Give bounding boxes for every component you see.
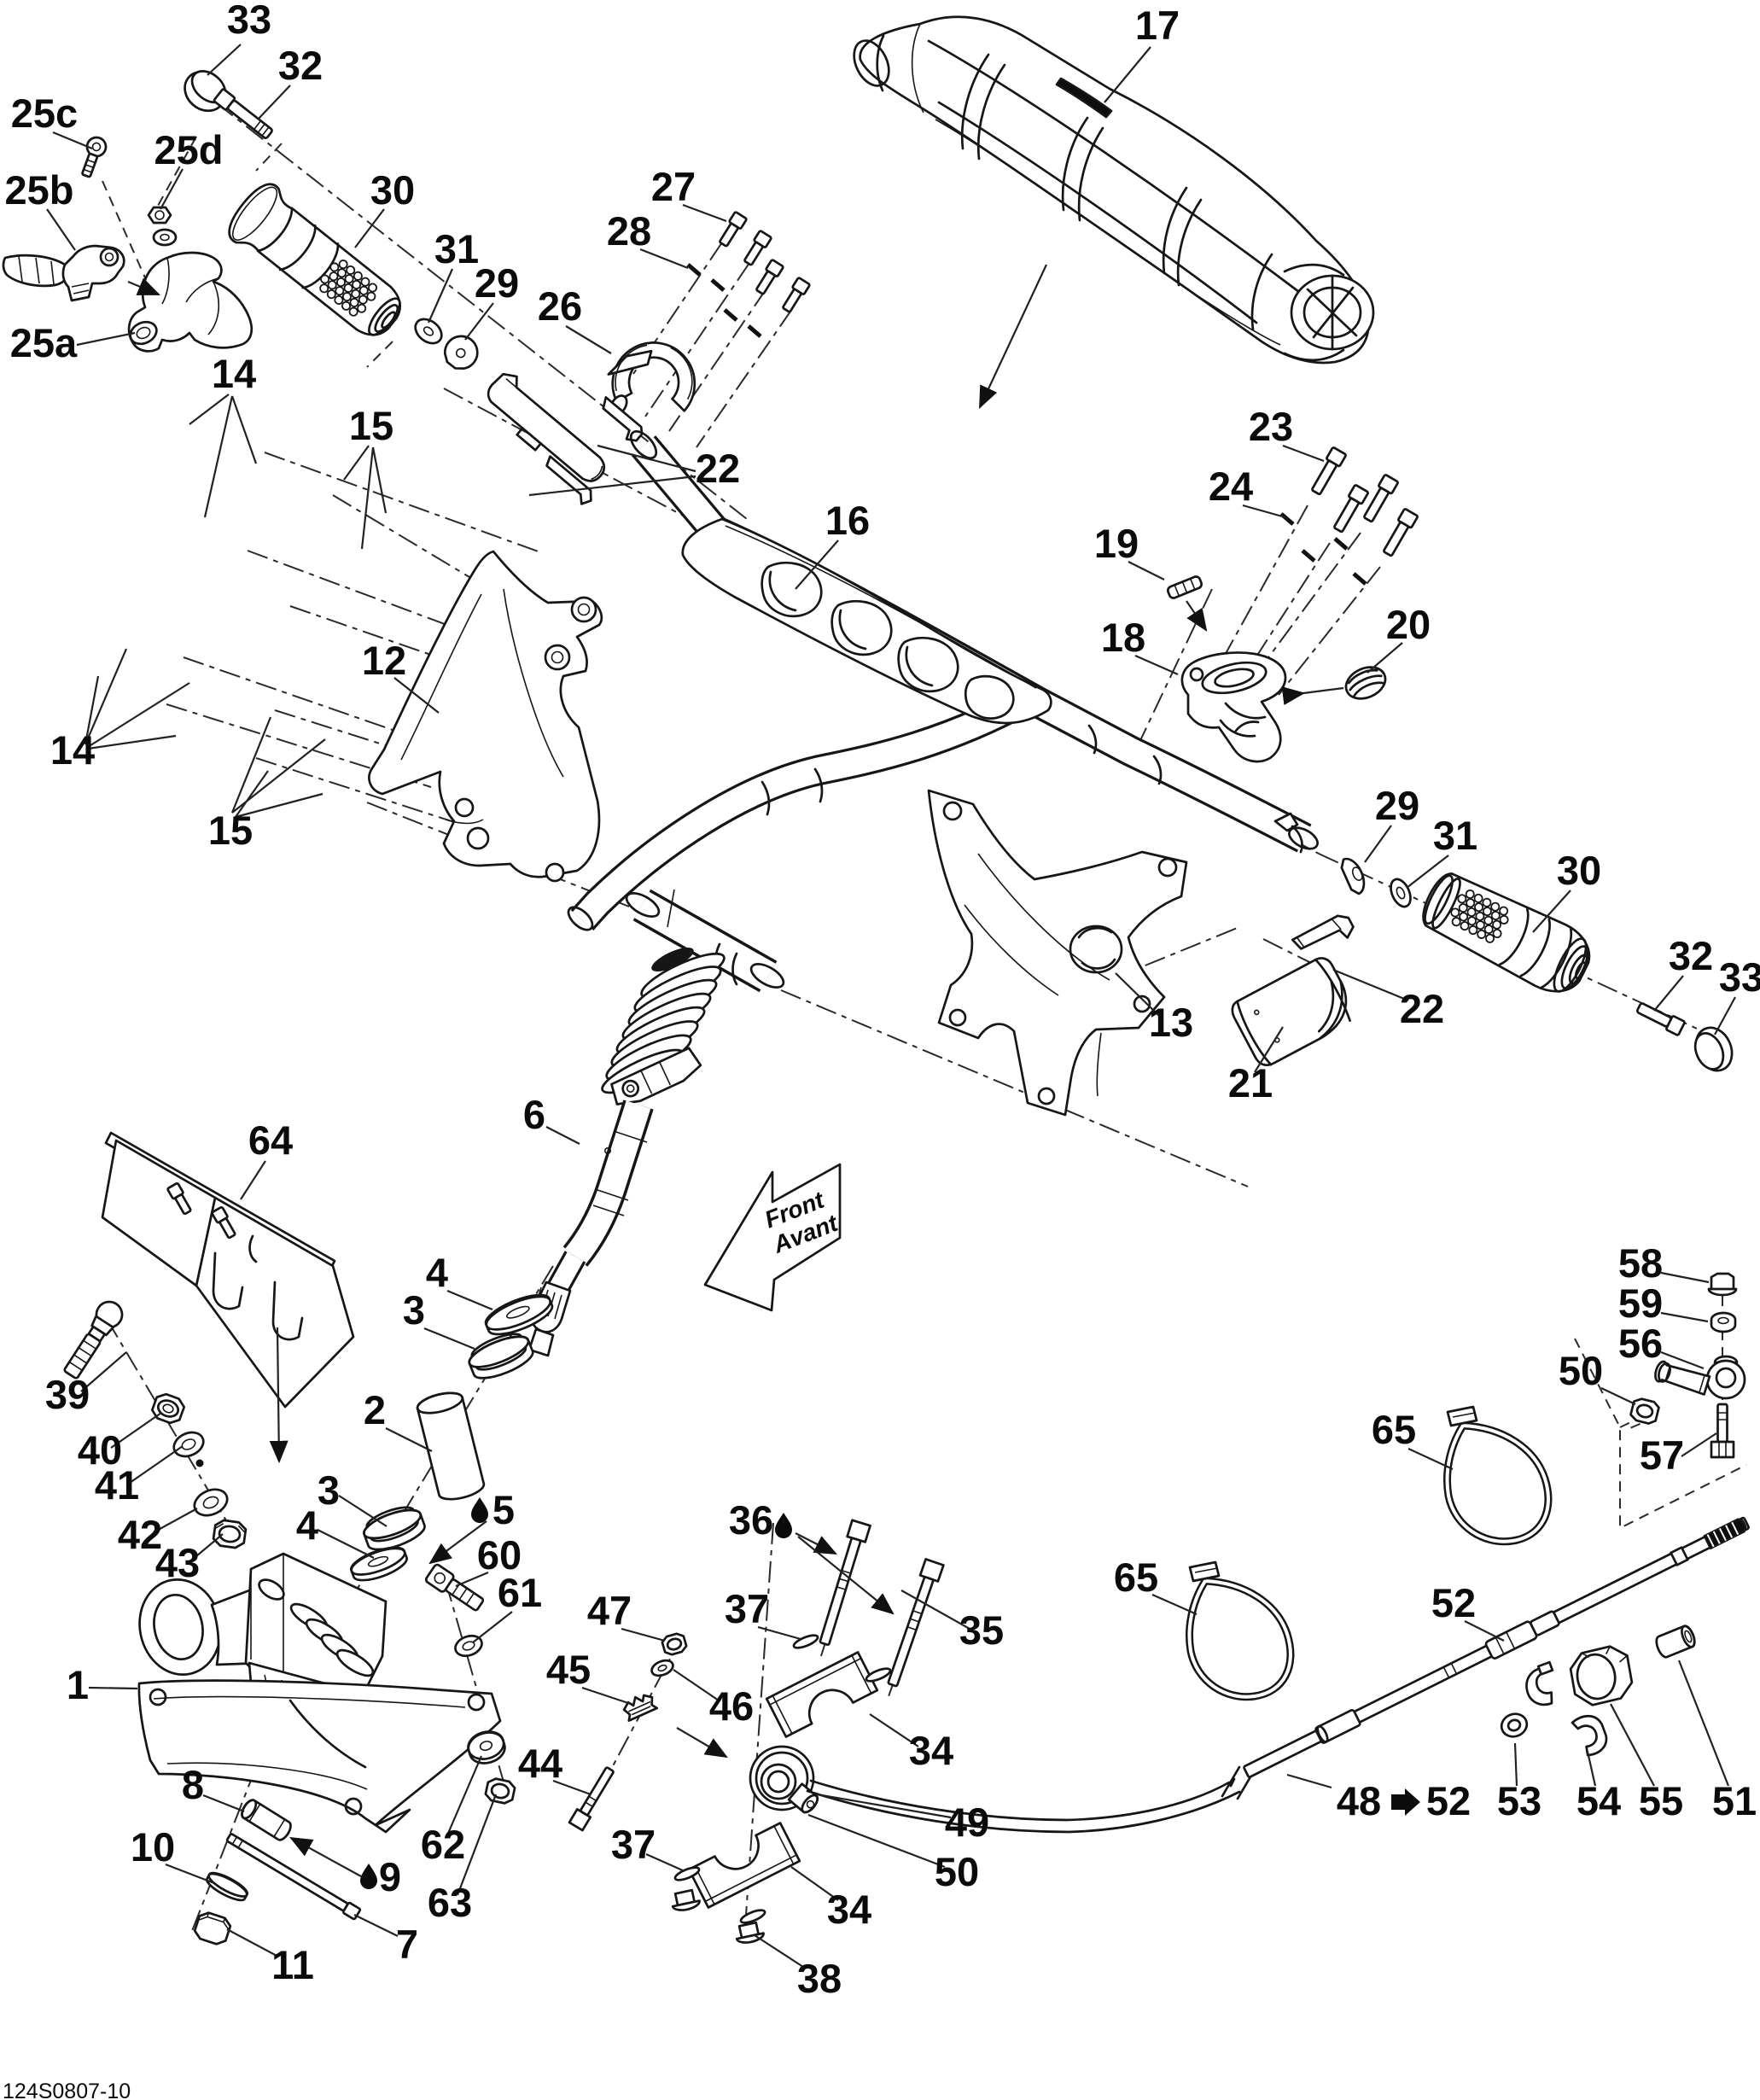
svg-text:26: 26 (538, 283, 582, 329)
svg-text:25a: 25a (10, 320, 78, 365)
svg-text:6: 6 (523, 1092, 545, 1137)
svg-text:4: 4 (296, 1502, 318, 1548)
svg-text:9: 9 (379, 1854, 401, 1899)
svg-text:4: 4 (426, 1250, 448, 1295)
svg-text:33: 33 (227, 0, 271, 42)
svg-text:52: 52 (1426, 1778, 1471, 1823)
svg-text:25c: 25c (11, 90, 78, 136)
svg-text:52: 52 (1431, 1580, 1476, 1625)
svg-text:44: 44 (518, 1741, 562, 1786)
svg-text:30: 30 (1557, 848, 1601, 893)
svg-text:25d: 25d (154, 127, 224, 172)
svg-text:5: 5 (492, 1487, 515, 1532)
svg-text:48: 48 (1337, 1778, 1381, 1823)
svg-text:8: 8 (182, 1762, 204, 1807)
svg-text:18: 18 (1101, 615, 1145, 660)
svg-text:21: 21 (1228, 1060, 1273, 1105)
svg-text:22: 22 (696, 446, 740, 491)
svg-text:27: 27 (651, 164, 696, 209)
svg-text:32: 32 (1669, 933, 1713, 978)
svg-text:7: 7 (396, 1922, 418, 1967)
svg-text:2: 2 (364, 1387, 386, 1432)
svg-text:124S0807-10: 124S0807-10 (3, 2080, 131, 2100)
svg-text:17: 17 (1135, 3, 1180, 48)
svg-text:56: 56 (1618, 1321, 1663, 1366)
svg-text:43: 43 (155, 1540, 200, 1585)
svg-text:41: 41 (95, 1462, 139, 1508)
svg-text:29: 29 (1375, 783, 1419, 828)
svg-text:65: 65 (1114, 1555, 1158, 1600)
svg-text:49: 49 (945, 1800, 989, 1845)
svg-text:62: 62 (421, 1822, 465, 1867)
svg-text:3: 3 (318, 1467, 340, 1513)
svg-text:37: 37 (611, 1822, 656, 1867)
svg-text:13: 13 (1149, 1000, 1193, 1045)
svg-text:14: 14 (50, 727, 95, 773)
svg-text:11: 11 (271, 1942, 314, 1987)
svg-text:30: 30 (370, 167, 415, 213)
svg-text:64: 64 (248, 1117, 293, 1163)
svg-text:15: 15 (208, 808, 253, 853)
svg-text:24: 24 (1209, 464, 1253, 509)
svg-text:63: 63 (428, 1880, 472, 1925)
svg-text:12: 12 (362, 638, 406, 683)
svg-text:34: 34 (827, 1887, 871, 1932)
svg-text:3: 3 (403, 1287, 425, 1333)
svg-text:25b: 25b (5, 167, 74, 213)
svg-text:36: 36 (729, 1497, 773, 1543)
svg-text:19: 19 (1094, 521, 1139, 566)
svg-text:15: 15 (349, 403, 393, 448)
svg-text:1: 1 (67, 1662, 89, 1707)
svg-text:23: 23 (1249, 404, 1293, 449)
svg-text:39: 39 (45, 1372, 90, 1417)
svg-text:54: 54 (1576, 1778, 1621, 1823)
svg-text:28: 28 (607, 208, 651, 254)
svg-text:53: 53 (1497, 1778, 1541, 1823)
svg-text:57: 57 (1640, 1432, 1684, 1478)
svg-text:65: 65 (1372, 1407, 1416, 1452)
svg-text:50: 50 (1559, 1348, 1603, 1393)
svg-text:22: 22 (1400, 986, 1444, 1031)
svg-text:45: 45 (546, 1647, 591, 1692)
svg-text:32: 32 (278, 43, 323, 88)
svg-text:20: 20 (1386, 602, 1431, 647)
svg-text:59: 59 (1618, 1280, 1663, 1326)
svg-text:58: 58 (1618, 1240, 1663, 1286)
svg-text:10: 10 (131, 1824, 175, 1870)
svg-text:47: 47 (587, 1588, 632, 1633)
svg-text:50: 50 (935, 1849, 979, 1894)
svg-text:29: 29 (475, 260, 519, 306)
svg-text:55: 55 (1639, 1778, 1683, 1823)
svg-text:38: 38 (797, 1956, 842, 2001)
svg-text:33: 33 (1719, 954, 1760, 1000)
svg-text:34: 34 (909, 1728, 953, 1773)
svg-text:37: 37 (725, 1586, 769, 1631)
svg-text:35: 35 (959, 1607, 1004, 1653)
svg-text:61: 61 (498, 1570, 542, 1615)
svg-text:31: 31 (1433, 813, 1477, 858)
svg-text:46: 46 (709, 1683, 754, 1729)
svg-text:14: 14 (212, 351, 256, 396)
svg-text:51: 51 (1712, 1778, 1757, 1823)
svg-text:16: 16 (825, 498, 870, 543)
svg-text:31: 31 (434, 226, 479, 271)
